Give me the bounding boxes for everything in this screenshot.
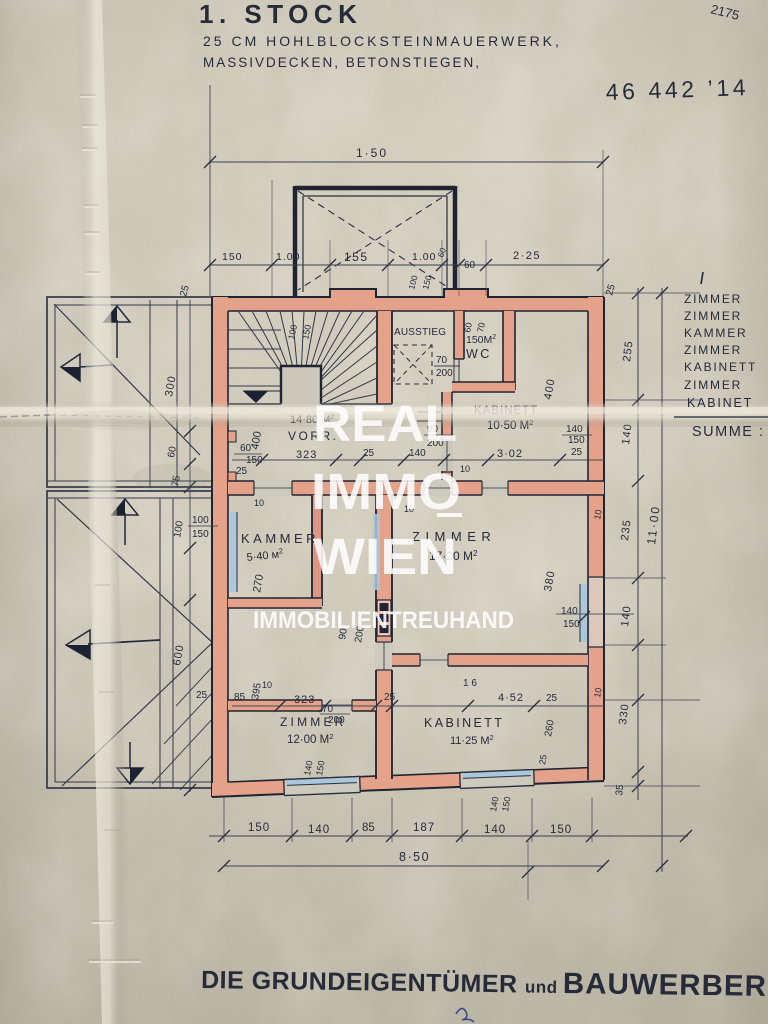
svg-text:1.00: 1.00 [276,251,300,263]
svg-text:MASSIVDECKEN, BETONSTIEGEN,: MASSIVDECKEN, BETONSTIEGEN, [203,55,481,70]
svg-text:REAL: REAL [313,395,457,452]
svg-text:60: 60 [464,260,476,271]
svg-text:1 6: 1 6 [463,678,477,689]
svg-text:140: 140 [561,606,578,617]
svg-text:8·50: 8·50 [399,850,430,864]
svg-text:3·02: 3·02 [497,448,523,460]
svg-text:150M2: 150M2 [466,334,496,346]
svg-text:ZIMMER: ZIMMER [684,292,742,306]
svg-text:KABINET: KABINET [687,396,753,410]
svg-text:200: 200 [436,368,453,379]
svg-text:ZIMMER: ZIMMER [684,378,742,392]
svg-text:WIEN: WIEN [313,528,457,585]
svg-text:ZIMMER: ZIMMER [280,715,347,729]
svg-text:60: 60 [462,322,474,334]
svg-text:25: 25 [537,754,549,766]
svg-text:35: 35 [614,784,626,797]
svg-text:85: 85 [362,822,375,834]
svg-text:70: 70 [436,355,448,366]
svg-text:10: 10 [460,464,470,474]
svg-text:10: 10 [254,498,264,508]
svg-text:70: 70 [322,704,334,715]
svg-text:25: 25 [546,693,558,704]
svg-text:150: 150 [550,824,572,836]
svg-text:4·52: 4·52 [498,692,524,704]
svg-text:85: 85 [234,692,246,703]
svg-text:323: 323 [294,694,315,706]
svg-text:150: 150 [248,822,270,834]
svg-text:25: 25 [384,692,396,703]
svg-text:25: 25 [571,447,583,458]
svg-text:187: 187 [413,822,435,834]
svg-text:70: 70 [475,322,487,334]
svg-text:1. STOCK: 1. STOCK [199,0,362,29]
svg-text:AUSSTIEG: AUSSTIEG [394,327,446,338]
svg-text:10: 10 [592,509,604,521]
svg-text:150: 150 [563,619,580,630]
svg-text:WC: WC [466,347,492,361]
svg-text:150: 150 [192,529,209,540]
svg-text:150: 150 [222,251,243,263]
svg-text:10: 10 [592,687,604,699]
svg-text:SUMME :: SUMME : [692,424,765,440]
svg-text:KABINETT: KABINETT [684,360,757,374]
svg-text:1·50: 1·50 [356,146,388,160]
svg-text:KABINETT: KABINETT [424,716,504,730]
svg-text:KAMMER: KAMMER [241,531,319,546]
svg-text:12·00 M2: 12·00 M2 [287,732,333,746]
svg-text:25: 25 [196,690,208,701]
svg-text:46 442 ’14: 46 442 ’14 [605,74,749,105]
svg-text:ZIMMER: ZIMMER [684,343,742,357]
svg-text:IMMOBILIENTREUHAND: IMMOBILIENTREUHAND [253,607,514,634]
svg-text:ZIMMER: ZIMMER [684,309,742,323]
svg-text:100: 100 [192,515,209,526]
svg-text:140: 140 [308,824,330,836]
svg-text:KAMMER: KAMMER [684,326,747,340]
svg-text:11·25 M2: 11·25 M2 [450,733,494,747]
svg-text:2·25: 2·25 [513,250,541,262]
svg-text:25: 25 [236,466,248,477]
svg-text:25 CM HOHLBLOCKSTEINMAUERWERK,: 25 CM HOHLBLOCKSTEINMAUERWERK, [203,33,562,49]
svg-text:IMMO: IMMO [311,463,461,520]
svg-text:140: 140 [484,824,506,836]
svg-text:155: 155 [344,250,369,264]
svg-text:1.00: 1.00 [412,251,436,263]
svg-text:150: 150 [568,435,585,446]
